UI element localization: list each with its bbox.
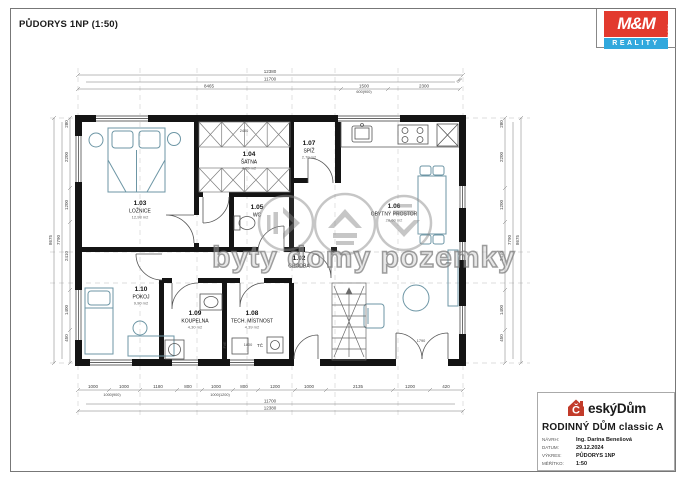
- room-label-loznice: 1.03 LOŽNICE 12,98 m2: [129, 200, 151, 220]
- dim-top-edge: 280: [456, 77, 463, 84]
- dim-left-seg: 2410: [64, 250, 69, 261]
- dim-bottom-seg: 1000: [304, 384, 315, 389]
- titleblock-row-label: DATUM:: [542, 444, 576, 452]
- single-bed: [85, 288, 113, 354]
- room-label-satna: 1.04 ŠATNA 4,09 m2: [241, 151, 258, 171]
- dim-bottom-seg: 1000: [88, 384, 99, 389]
- svg-text:1.07: 1.07: [303, 140, 316, 147]
- titleblock-row: DATUM: 29.12.2024: [542, 444, 674, 452]
- ceskydum-house-icon: Č: [566, 398, 586, 418]
- svg-text:1.09: 1.09: [189, 310, 202, 317]
- room-label-spiz: 1.07 SPÍŽ 2,70 m2: [302, 140, 317, 160]
- dim-bottom-seg: 1200: [270, 384, 281, 389]
- svg-text:1.02: 1.02: [293, 255, 306, 262]
- dim-top-window: 1500: [359, 84, 370, 89]
- dim-bottom-seg: 1180: [153, 384, 163, 389]
- dim-bottom-seg: 1000: [119, 384, 130, 389]
- room-label-pokoj: 1.10 POKOJ 9,90 m2: [133, 286, 150, 306]
- room-label-chodba: 1.02 CHODBA: [288, 255, 310, 270]
- dim-bottom-seg: 800: [184, 384, 192, 389]
- kitchen-counter: [341, 122, 459, 147]
- svg-text:SPÍŽ: SPÍŽ: [303, 147, 314, 155]
- dim-top-inner: 11700: [264, 77, 277, 82]
- room-label-tech-mistnost: 1.08 TECH. MÍSTNOST 4,39 m2: [231, 310, 273, 330]
- dim-top-left: 8465: [204, 84, 215, 89]
- dim-right-seg: 1200: [499, 199, 504, 210]
- titleblock-row: MĚŘÍTKO: 1:50: [542, 460, 674, 468]
- dim-left-total: 8675: [48, 234, 53, 245]
- dim-right-inner: 7790: [507, 234, 512, 245]
- dim-left-seg: 450: [64, 334, 69, 342]
- dim-top-total: 12380: [264, 69, 277, 74]
- svg-text:4,09 m2: 4,09 m2: [242, 166, 257, 171]
- dim-left-seg: 2200: [64, 151, 69, 162]
- dim-bottom-total: 12380: [264, 406, 277, 411]
- room-label-koupelna: 1.09 KOUPELNA 4,30 m2: [181, 310, 209, 330]
- dim-bottom-seg: 2135: [353, 384, 364, 389]
- dim-bottom-seg: 420: [442, 384, 450, 389]
- watermark-house-icons: [259, 194, 431, 254]
- titleblock-row-value: 1:50: [576, 460, 587, 468]
- titleblock-row-value: PŮDORYS 1NP: [576, 452, 615, 460]
- dim-left-seg: 1200: [64, 199, 69, 210]
- svg-text:LOŽNICE: LOŽNICE: [129, 207, 151, 215]
- dim-right-seg: 450: [499, 334, 504, 342]
- dim-bottom-seg: 1000: [211, 384, 222, 389]
- svg-text:4,30 m2: 4,30 m2: [188, 325, 203, 330]
- svg-text:2,70 m2: 2,70 m2: [302, 155, 317, 160]
- ceskydum-icon-letter: Č: [572, 404, 580, 417]
- dim-top-right: 2300: [419, 84, 430, 89]
- title-block: Č eskýDům RODINNÝ DŮM classic A NÁVRH: I…: [537, 392, 675, 471]
- dim-stairs: 1800: [244, 343, 252, 347]
- lounge-area: [364, 250, 458, 328]
- dim-bottom-sub: 1000(900): [103, 393, 121, 397]
- svg-text:1.04: 1.04: [243, 151, 256, 158]
- titleblock-row-label: VÝKRES:: [542, 452, 576, 460]
- stairs: [332, 283, 366, 360]
- svg-text:1.08: 1.08: [246, 310, 259, 317]
- ceskydum-logo-text: eskýDům: [588, 401, 646, 416]
- dim-top-window-sub: 600(900): [356, 90, 372, 94]
- dim-left-seg: 280: [64, 120, 69, 128]
- svg-text:TECH. MÍSTNOST: TECH. MÍSTNOST: [231, 318, 273, 325]
- dim-bottom-seg: 1200: [405, 384, 416, 389]
- dim-satna: 2400: [240, 129, 248, 133]
- dim-left-seg: 1400: [64, 304, 69, 315]
- svg-text:4,39 m2: 4,39 m2: [245, 325, 260, 330]
- svg-text:12,98 m2: 12,98 m2: [132, 215, 149, 220]
- titleblock-row: NÁVRH: Ing. Darina Benešová: [542, 436, 674, 444]
- svg-text:ŠATNA: ŠATNA: [241, 159, 258, 166]
- dim-right-seg: 280: [499, 120, 504, 128]
- project-title: RODINNÝ DŮM classic A: [542, 422, 674, 433]
- dim-right-seg: 1400: [499, 304, 504, 315]
- dim-left-inner: 7790: [56, 234, 61, 245]
- svg-text:9,90 m2: 9,90 m2: [134, 301, 149, 306]
- titleblock-row-label: MĚŘÍTKO:: [542, 460, 576, 468]
- svg-text:1.03: 1.03: [134, 200, 147, 207]
- drawing-sheet: PŮDORYS 1NP (1:50) M&M HOLDING REALITY: [0, 0, 686, 480]
- dim-bottom-inner: 11700: [264, 399, 277, 404]
- fve-label: FVE: [223, 341, 227, 348]
- ceskydum-logo: Č eskýDům: [538, 398, 674, 418]
- svg-text:1.10: 1.10: [135, 286, 148, 293]
- titleblock-row: VÝKRES: PŮDORYS 1NP: [542, 452, 674, 460]
- desk: [128, 321, 174, 356]
- titleblock-row-label: NÁVRH:: [542, 436, 576, 444]
- titleblock-row-value: Ing. Darina Benešová: [576, 436, 632, 444]
- dim-right-total: 8675: [515, 234, 520, 245]
- double-bed: [89, 128, 181, 192]
- tc-label: TČ: [257, 342, 264, 348]
- dim-right-seg: 2200: [499, 151, 504, 162]
- titleblock-row-value: 29.12.2024: [576, 444, 604, 452]
- dim-right-seg: 2410: [499, 250, 504, 261]
- dim-bottom-seg: 800: [240, 384, 248, 389]
- svg-text:CHODBA: CHODBA: [288, 264, 310, 270]
- dim-door: 1790: [417, 339, 425, 343]
- dim-bottom-sub: 1000(1200): [210, 393, 230, 397]
